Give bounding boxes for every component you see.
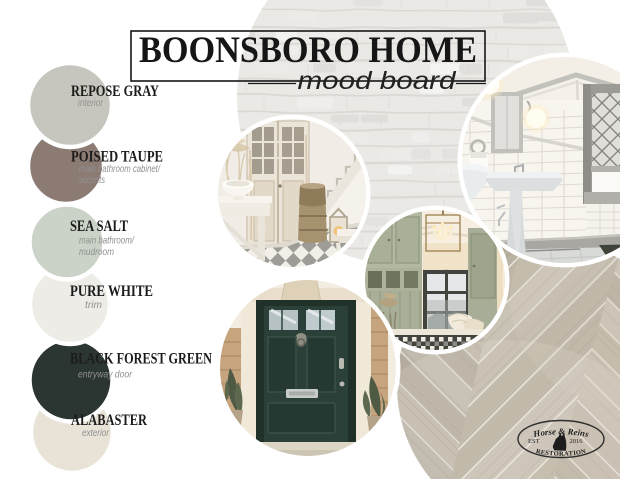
- svg-text:trim: trim: [85, 300, 102, 311]
- svg-text:entryway door: entryway door: [78, 370, 133, 381]
- svg-text:mood board: mood board: [298, 67, 457, 95]
- svg-text:main bathroom cabinet/: main bathroom cabinet/: [79, 164, 161, 175]
- svg-text:EST: EST: [528, 438, 540, 445]
- svg-text:ALABASTER: ALABASTER: [71, 412, 147, 429]
- svg-text:POISED TAUPE: POISED TAUPE: [71, 149, 163, 166]
- svg-text:2016: 2016: [570, 438, 584, 445]
- svg-text:exterior: exterior: [82, 428, 110, 439]
- svg-text:interior: interior: [78, 98, 104, 109]
- svg-text:accents: accents: [79, 175, 105, 186]
- svg-text:BOONSBORO HOME: BOONSBORO HOME: [139, 30, 477, 71]
- svg-text:PURE WHITE: PURE WHITE: [70, 283, 153, 300]
- svg-text:mudroom: mudroom: [79, 247, 114, 258]
- svg-text:BLACK FOREST GREEN: BLACK FOREST GREEN: [70, 351, 212, 368]
- svg-text:main bathroom/: main bathroom/: [79, 236, 135, 247]
- svg-text:SEA SALT: SEA SALT: [70, 218, 128, 235]
